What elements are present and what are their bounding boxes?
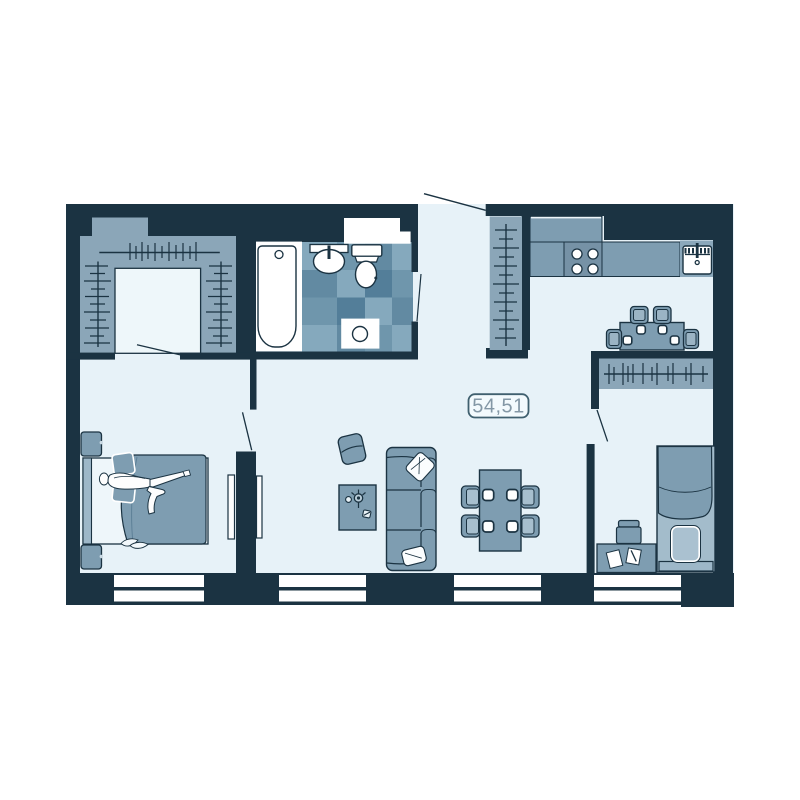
svg-text:54,51: 54,51 xyxy=(472,396,525,418)
